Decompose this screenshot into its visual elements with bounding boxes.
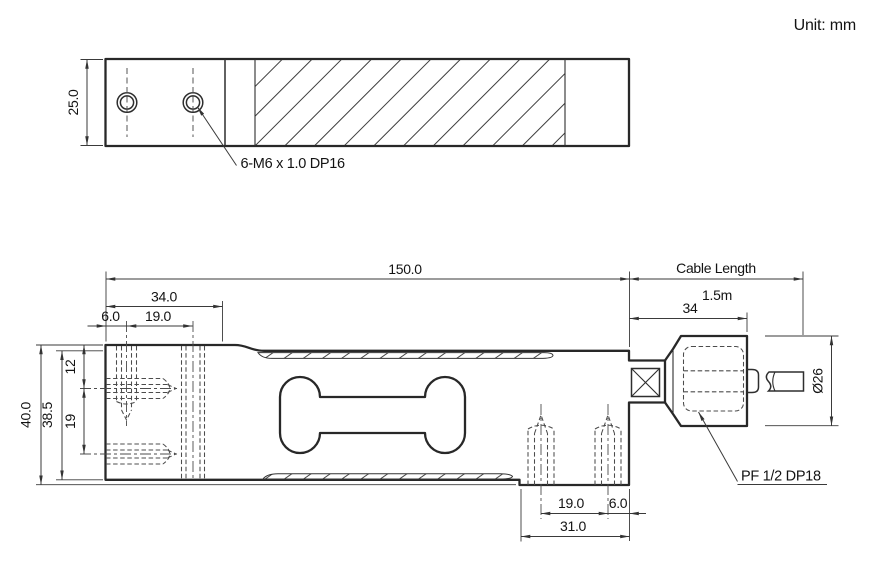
dim-34-connector: 34	[683, 300, 698, 316]
side-view	[80, 321, 804, 519]
bone-cutout	[280, 377, 465, 453]
cable-length-label: Cable Length	[676, 260, 756, 276]
dim-12: 12	[62, 359, 78, 374]
dim-40: 40.0	[18, 401, 34, 428]
dim-34-mount: 34.0	[151, 289, 178, 305]
dim-6-bottom: 6.0	[609, 495, 628, 511]
dim-6-edge: 6.0	[101, 308, 120, 324]
drawing-canvas: 25.0 6-M6 x 1.0 DP16	[0, 0, 870, 578]
unit-label: Unit: mm	[794, 17, 856, 34]
dim-19-side: 19	[62, 414, 78, 429]
hatched-area	[255, 60, 565, 145]
dim-19-bottom: 19.0	[558, 495, 585, 511]
dim-31: 31.0	[560, 518, 587, 534]
cable	[766, 372, 803, 391]
cable-length-value: 1.5m	[702, 287, 732, 303]
cable-exit	[747, 370, 759, 393]
hidden-hole-side-lower	[80, 444, 179, 464]
dim-25: 25.0	[65, 89, 81, 116]
top-view: 25.0 6-M6 x 1.0 DP16	[65, 59, 629, 172]
thread-callout: 6-M6 x 1.0 DP16	[241, 156, 346, 172]
dimensions: 150.0 Cable Length 1.5m 34 34.0 6.0 19.0…	[18, 260, 839, 542]
top-gap	[258, 353, 553, 359]
bottom-gap	[263, 474, 513, 479]
pf-callout: PF 1/2 DP18	[741, 469, 821, 485]
dim-dia-26: Ø26	[810, 368, 826, 394]
hidden-hole-top	[117, 321, 137, 426]
dim-19-pitch: 19.0	[145, 308, 172, 324]
side-view-body	[106, 345, 666, 485]
dim-150: 150.0	[388, 261, 422, 277]
connector-body	[665, 336, 747, 426]
dim-38-5: 38.5	[39, 401, 55, 428]
pf-thread-hidden	[684, 347, 744, 412]
hidden-hole-bottom-1	[528, 404, 554, 519]
hidden-hole-side-upper	[80, 379, 179, 399]
loadcell-drawing: 25.0 6-M6 x 1.0 DP16	[0, 0, 870, 578]
